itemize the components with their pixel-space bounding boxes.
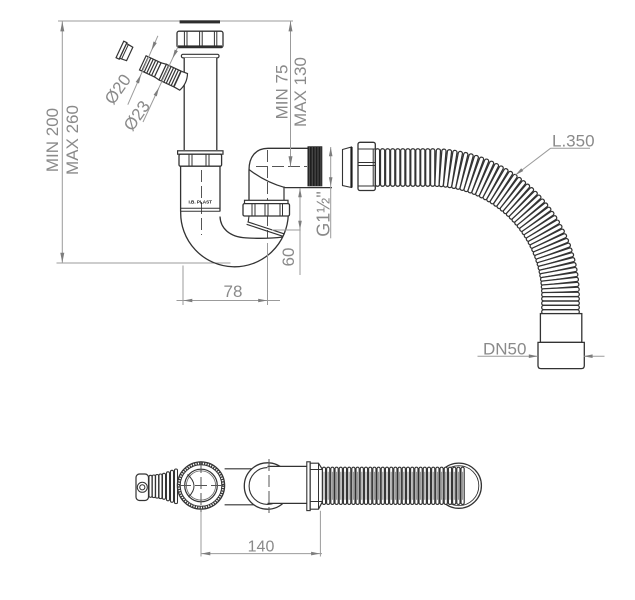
svg-text:MIN 200: MIN 200 — [43, 108, 62, 172]
svg-text:I.B. PLAST: I.B. PLAST — [189, 199, 213, 204]
svg-text:78: 78 — [224, 282, 243, 301]
svg-text:G1½": G1½" — [314, 191, 334, 236]
svg-text:MAX 260: MAX 260 — [63, 105, 82, 175]
svg-text:60: 60 — [279, 248, 298, 267]
svg-text:MAX 130: MAX 130 — [291, 57, 310, 127]
svg-text:DN50: DN50 — [483, 340, 526, 359]
svg-text:Ø23: Ø23 — [120, 97, 154, 134]
svg-text:140: 140 — [248, 538, 275, 555]
svg-text:L.350: L.350 — [552, 132, 595, 151]
svg-text:Ø20: Ø20 — [101, 71, 135, 108]
svg-text:MIN 75: MIN 75 — [273, 65, 292, 120]
